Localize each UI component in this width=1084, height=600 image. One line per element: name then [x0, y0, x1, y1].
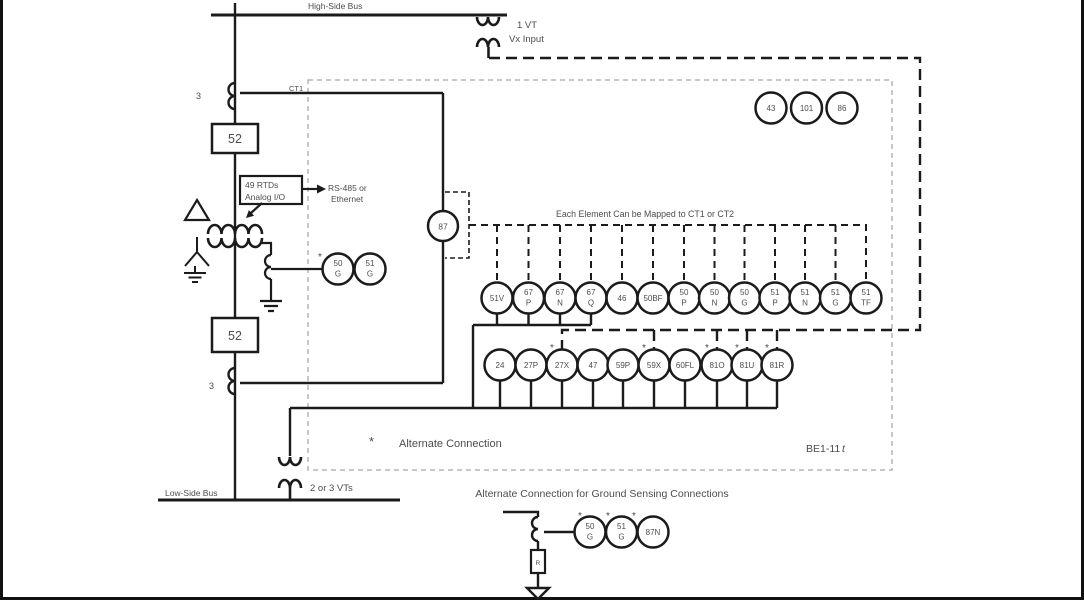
rtd-line1: 49 RTDs: [245, 180, 278, 190]
element-101-label: 101: [800, 104, 814, 113]
element-67q-line1: 67: [587, 288, 596, 297]
element-24-label: 24: [496, 361, 505, 370]
neutral-ct-symbol: [265, 255, 271, 279]
low-side-vt-symbol: [279, 457, 301, 500]
element-67p-line1: 67: [524, 288, 533, 297]
row2-solid-collector: [290, 381, 777, 457]
element-67q-line2: Q: [588, 299, 594, 308]
rtd-comm-arrowhead-icon: [317, 185, 326, 194]
low-vt-primary: [279, 457, 301, 465]
element-51p-line1: 51: [771, 288, 780, 297]
ct1-label: CT1: [289, 84, 303, 93]
alt-note-asterisk: *: [369, 434, 374, 449]
element-50g-line1: 50: [740, 288, 749, 297]
frame-left-bar: [0, 0, 3, 600]
element-row1: 51V 67 P 67 N 67 Q 46 50BF 50 P 50 N 50 …: [482, 283, 882, 314]
element-51p-line2: P: [772, 299, 777, 308]
element-67p-line2: P: [526, 299, 531, 308]
ground-branch-top: [503, 512, 538, 517]
ct1-count-label: 3: [196, 91, 201, 101]
element-87n-label: 87N: [646, 528, 661, 537]
element-51tf-line2: TF: [861, 299, 871, 308]
element-81r-label: 81R: [770, 361, 785, 370]
control-elements: 43 101 86: [756, 93, 858, 124]
oneline-diagram-page: High-Side Bus Low-Side Bus 3 CT1 52 * 50…: [0, 0, 1084, 600]
wye-winding-icon: [184, 237, 209, 282]
high-side-bus-label: High-Side Bus: [308, 1, 362, 11]
element-86-label: 86: [838, 104, 847, 113]
neutral-asterisk: *: [318, 252, 322, 263]
element-51g-neutral-line2: G: [367, 270, 373, 279]
element-87-label: 87: [438, 222, 448, 232]
wye-ground-icon: [184, 266, 206, 282]
neutral-branch-top: [262, 243, 271, 255]
element-50g-line2: G: [741, 299, 747, 308]
element-81o-label: 81O: [709, 361, 724, 370]
element-50p-line2: P: [681, 299, 686, 308]
element-51g-neutral-line1: 51: [366, 259, 375, 268]
element-27x-label: 27X: [555, 361, 570, 370]
element-51v-label: 51V: [490, 294, 505, 303]
element-47-label: 47: [589, 361, 598, 370]
element-60fl-label: 60FL: [676, 361, 695, 370]
neutral-ct-branch: [260, 243, 322, 311]
vx-label-line1: 1 VT: [517, 20, 537, 31]
element-67n-line2: N: [557, 299, 563, 308]
ground-ct-symbol: [532, 517, 538, 541]
element-row2: 24 27P 27X 47 59P 59X 60FL 81O 81U 81R: [485, 350, 793, 381]
element-59p-label: 59P: [616, 361, 630, 370]
element-50n-line2: N: [712, 299, 718, 308]
element-50n-line1: 50: [710, 288, 719, 297]
device-suffix: t: [842, 443, 846, 455]
element-50g-neutral-line1: 50: [334, 259, 343, 268]
element-59x-label: 59X: [647, 361, 662, 370]
element-50g-neutral-line2: G: [335, 270, 341, 279]
ground-section-title: Alternate Connection for Ground Sensing …: [475, 488, 728, 500]
row1-dashed-bus: [469, 225, 866, 282]
vx-vt-primary: [477, 17, 499, 25]
element-67n-line1: 67: [556, 288, 565, 297]
element-51g-ground-line2: G: [618, 533, 624, 542]
element-50g-ground-line1: 50: [586, 522, 595, 531]
asterisk-ground-51g: *: [606, 511, 610, 522]
comm-line2: Ethernet: [331, 194, 364, 204]
vx-label-line2: Vx Input: [509, 34, 544, 45]
wye-lines: [185, 237, 209, 266]
element-51g-line2: G: [832, 299, 838, 308]
ground-element-row: 50 G 51 G 87N: [575, 517, 669, 548]
element-43-label: 43: [767, 104, 776, 113]
element-50p-line1: 50: [680, 288, 689, 297]
element-50g-ground-line2: G: [587, 533, 593, 542]
low-vt-secondary: [279, 480, 301, 488]
vx-vt-secondary: [477, 39, 499, 47]
low-side-bus-label: Low-Side Bus: [165, 488, 217, 498]
delta-winding-icon: [185, 200, 209, 220]
breaker-52-bottom-label: 52: [228, 329, 242, 343]
breaker-52-top-label: 52: [228, 132, 242, 146]
ct2-count-label: 3: [209, 381, 214, 391]
element-51n-line1: 51: [801, 288, 810, 297]
element-50bf-label: 50BF: [643, 294, 662, 303]
element-51tf-line1: 51: [862, 288, 871, 297]
element-51n-line2: N: [802, 299, 808, 308]
element-51g-line1: 51: [831, 288, 840, 297]
vx-vt-symbol: [477, 17, 499, 58]
alt-note: Alternate Connection: [399, 438, 502, 450]
rtd-line2: Analog I/O: [245, 192, 286, 202]
element-46-label: 46: [618, 294, 627, 303]
element-81u-label: 81U: [740, 361, 755, 370]
low-vt-label: 2 or 3 VTs: [310, 483, 353, 494]
comm-line1: RS-485 or: [328, 183, 367, 193]
element-51g-ground-line1: 51: [617, 522, 626, 531]
ground-resistor-label: R: [536, 560, 541, 567]
mapped-note: Each Element Can be Mapped to CT1 or CT2: [556, 209, 734, 219]
oneline-diagram: High-Side Bus Low-Side Bus 3 CT1 52 * 50…: [0, 0, 1084, 600]
device-name: BE1-11: [806, 443, 840, 455]
element-27p-label: 27P: [524, 361, 538, 370]
neutral-ground-icon: [260, 301, 282, 311]
